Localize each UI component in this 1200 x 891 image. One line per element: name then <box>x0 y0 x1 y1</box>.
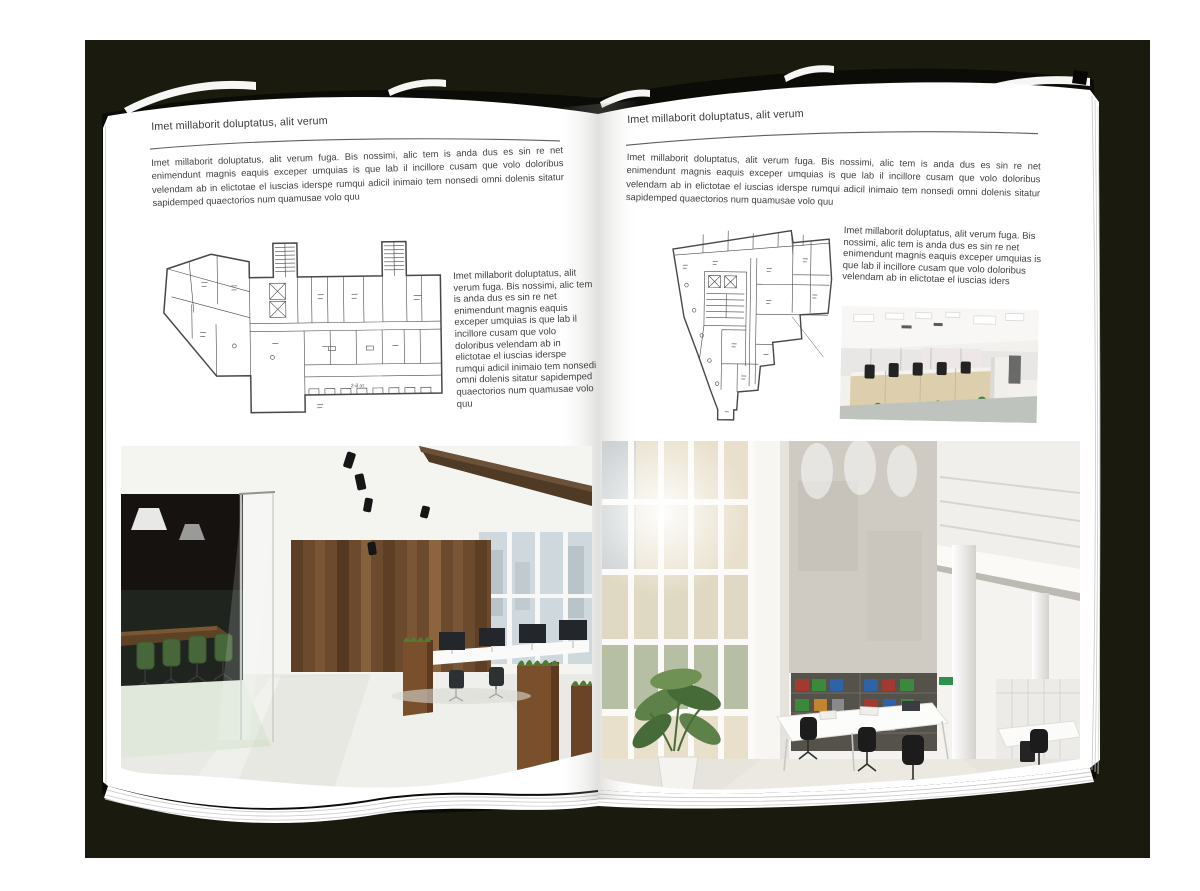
office-photo-small <box>840 306 1039 423</box>
office-photo-left <box>121 446 592 798</box>
right-side-column: Imet millaborit doluptatus, alit verum f… <box>842 225 1049 289</box>
page-tab <box>1072 70 1088 85</box>
floor-plan-left: 2-й эт <box>151 223 452 425</box>
plan-floor-note: 2-й эт <box>351 382 365 389</box>
office-photo-right <box>602 441 1080 805</box>
right-intro-paragraph: Imet millaborit doluptatus, alit verum f… <box>626 150 1041 213</box>
left-side-column: Imet millaborit doluptatus, alit verum f… <box>453 267 598 410</box>
floor-plan-right <box>641 213 846 428</box>
brochure-mockup-scene: Imet millaborit doluptatus, alit verum I… <box>0 0 1200 891</box>
right-header-rule <box>624 123 1040 148</box>
